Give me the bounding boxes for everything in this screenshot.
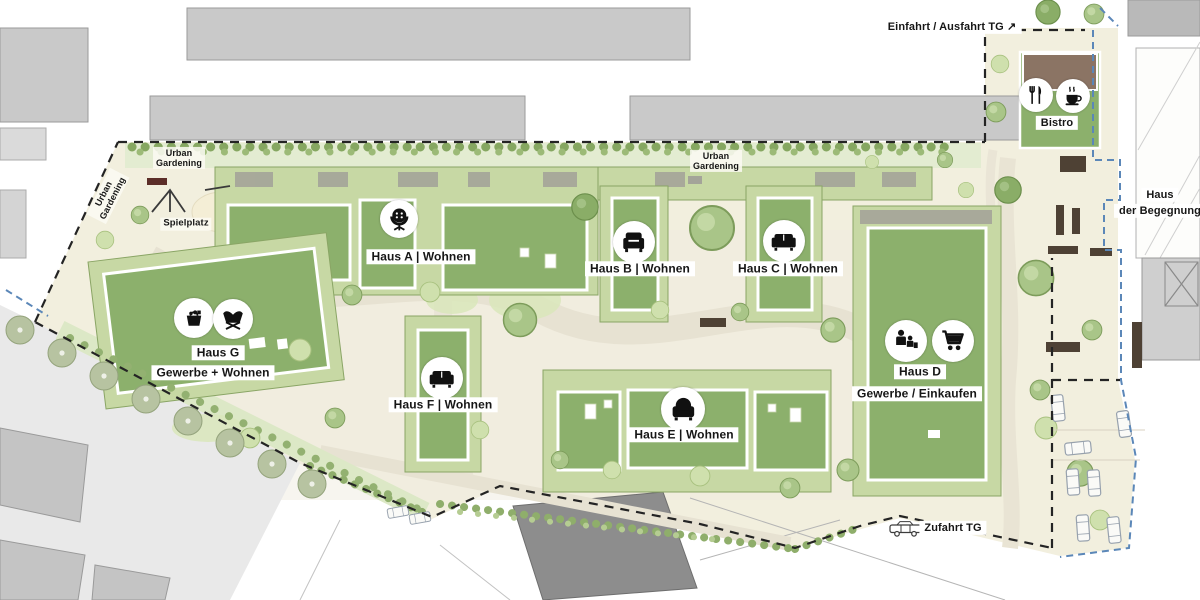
shopping-cart-icon [932, 320, 974, 362]
sofa-icon [763, 220, 805, 262]
round-armchair-icon [661, 387, 705, 431]
planter-box [147, 178, 167, 185]
label-haus-der-begegnung-1: Haus [1141, 188, 1178, 202]
lounge-chair-icon [213, 299, 253, 339]
label-haus-der-begegnung-2: der Begegnung [1114, 204, 1200, 218]
family-icon [885, 320, 927, 362]
label-haus-e: Haus E | Wohnen [629, 427, 738, 442]
label-zufahrt-tg: Zufahrt TG [919, 521, 986, 535]
pedestal-chair-icon [380, 200, 418, 238]
label-haus-c: Haus C | Wohnen [733, 261, 843, 276]
label-haus-d-subtitle: Gewerbe / Einkaufen [852, 386, 982, 401]
sofa-icon [421, 357, 463, 399]
label-haus-f: Haus F | Wohnen [389, 397, 498, 412]
label-urban-gardening-center: Urban Gardening [690, 150, 742, 172]
label-haus-d-name: Haus D [894, 364, 946, 379]
label-bistro: Bistro [1036, 116, 1078, 130]
armchair-icon [613, 221, 655, 263]
label-einfahrt-ausfahrt-tg: Einfahrt / Ausfahrt TG ↗ [883, 20, 1022, 34]
label-spielplatz: Spielplatz [160, 218, 211, 231]
fork-knife-icon [1019, 78, 1053, 112]
label-haus-b: Haus B | Wohnen [585, 261, 695, 276]
site-plan-canvas: Einfahrt / Ausfahrt TG ↗ Haus A | Wohnen… [0, 0, 1200, 600]
label-haus-g-subtitle: Gewerbe + Wohnen [151, 365, 274, 380]
label-urban-gardening-topleft: Urban Gardening [153, 147, 205, 169]
coffee-cup-icon [1056, 79, 1090, 113]
shopping-basket-icon [174, 298, 214, 338]
label-haus-g-name: Haus G [192, 345, 245, 360]
label-haus-a: Haus A | Wohnen [366, 249, 475, 264]
